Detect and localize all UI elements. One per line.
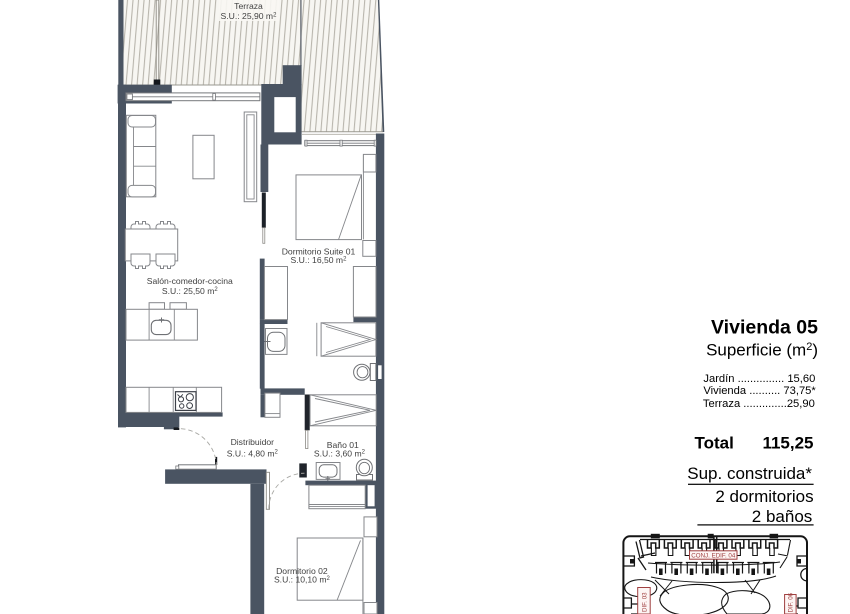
svg-text:S.U.: 10,10 m2: S.U.: 10,10 m2	[274, 575, 331, 585]
svg-text:Terraza: Terraza	[234, 1, 263, 11]
svg-text:DIF. 06: DIF. 06	[788, 592, 795, 612]
svg-text:Terraza ..............25,90: Terraza ..............25,90	[703, 398, 815, 410]
svg-text:Jardín ............... 15,60: Jardín ............... 15,60	[703, 373, 815, 385]
svg-text:2 baños: 2 baños	[752, 507, 813, 526]
svg-text:Total: Total	[695, 434, 734, 453]
svg-text:S.U.: 3,60 m2: S.U.: 3,60 m2	[314, 448, 366, 458]
svg-text:Vivienda .......... 73,75*: Vivienda .......... 73,75*	[703, 385, 816, 397]
svg-text:Salón-comedor-cocina: Salón-comedor-cocina	[147, 276, 233, 286]
svg-text:S.U.: 25,50 m2: S.U.: 25,50 m2	[162, 286, 219, 296]
svg-text:DIF. 03: DIF. 03	[641, 592, 648, 612]
svg-text:S.U.: 16,50 m2: S.U.: 16,50 m2	[291, 255, 348, 265]
svg-text:2 dormitorios: 2 dormitorios	[715, 487, 813, 506]
svg-text:Sup. construida*: Sup. construida*	[687, 464, 812, 483]
svg-text:115,25: 115,25	[762, 434, 813, 453]
svg-text:Vivienda 05: Vivienda 05	[711, 317, 818, 339]
svg-text:S.U.: 4,80 m2: S.U.: 4,80 m2	[227, 448, 279, 458]
svg-text:CONJ. EDIF. 04: CONJ. EDIF. 04	[691, 552, 736, 559]
svg-text:Superficie (m2): Superficie (m2)	[706, 341, 818, 360]
svg-text:S.U.: 25,90 m2: S.U.: 25,90 m2	[221, 11, 278, 21]
svg-text:Distribuidor: Distribuidor	[231, 437, 275, 447]
